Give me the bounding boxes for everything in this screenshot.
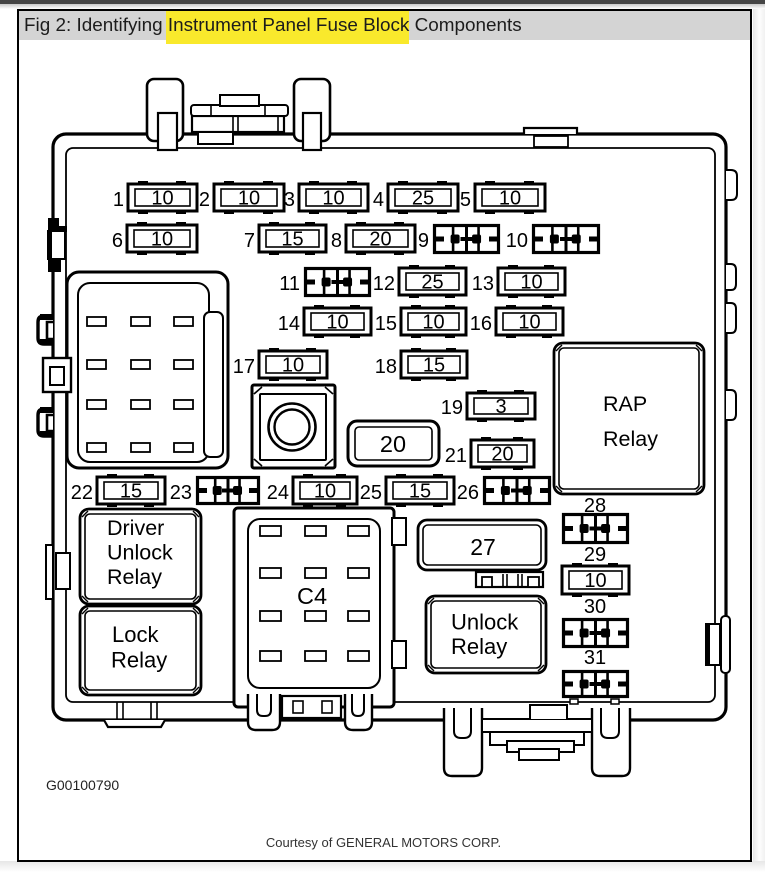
svg-text:19: 19 (441, 397, 463, 419)
svg-text:Relay: Relay (603, 427, 658, 451)
svg-text:31: 31 (584, 647, 606, 669)
svg-text:10: 10 (151, 188, 173, 210)
svg-text:Relay: Relay (111, 648, 167, 673)
svg-text:25: 25 (360, 482, 382, 504)
svg-text:15: 15 (423, 355, 445, 377)
svg-text:Lock: Lock (112, 622, 159, 647)
svg-text:17: 17 (233, 356, 255, 378)
svg-text:15: 15 (375, 313, 397, 335)
svg-text:24: 24 (267, 482, 289, 504)
svg-text:Relay: Relay (451, 634, 507, 659)
svg-text:10: 10 (520, 272, 542, 294)
svg-text:26: 26 (457, 482, 479, 504)
svg-text:11: 11 (279, 273, 300, 295)
svg-text:10: 10 (151, 229, 173, 251)
svg-text:20: 20 (380, 431, 406, 457)
svg-text:27: 27 (470, 534, 496, 560)
svg-text:8: 8 (331, 230, 342, 252)
svg-text:3: 3 (495, 396, 506, 418)
svg-text:15: 15 (281, 229, 303, 251)
svg-text:10: 10 (322, 188, 344, 210)
svg-text:Driver: Driver (107, 516, 164, 540)
svg-text:12: 12 (373, 273, 395, 295)
svg-text:10: 10 (326, 312, 348, 334)
svg-text:Relay: Relay (107, 565, 162, 589)
svg-text:10: 10 (506, 230, 528, 252)
svg-text:18: 18 (375, 356, 397, 378)
svg-text:10: 10 (518, 312, 540, 334)
svg-text:RAP: RAP (603, 392, 647, 416)
svg-text:2: 2 (199, 189, 210, 211)
svg-text:10: 10 (584, 570, 606, 592)
svg-text:20: 20 (491, 444, 513, 466)
svg-text:30: 30 (584, 596, 606, 618)
svg-text:3: 3 (284, 189, 295, 211)
svg-text:C4: C4 (297, 583, 327, 609)
svg-text:6: 6 (112, 230, 123, 252)
svg-text:1: 1 (113, 189, 124, 211)
svg-text:16: 16 (470, 313, 492, 335)
svg-text:15: 15 (409, 481, 431, 503)
svg-text:29: 29 (584, 544, 606, 566)
svg-text:5: 5 (460, 189, 471, 211)
svg-text:15: 15 (120, 481, 142, 503)
svg-text:10: 10 (314, 481, 336, 503)
svg-text:Unlock: Unlock (451, 610, 519, 635)
svg-text:13: 13 (472, 273, 494, 295)
svg-text:10: 10 (422, 312, 444, 334)
svg-text:25: 25 (412, 188, 434, 210)
svg-text:10: 10 (499, 188, 521, 210)
svg-text:25: 25 (421, 272, 443, 294)
svg-text:9: 9 (418, 230, 429, 252)
svg-text:7: 7 (244, 230, 255, 252)
svg-text:14: 14 (278, 313, 300, 335)
svg-text:21: 21 (445, 445, 467, 467)
svg-text:20: 20 (369, 229, 391, 251)
svg-text:10: 10 (238, 188, 260, 210)
svg-text:23: 23 (170, 482, 192, 504)
svg-text:Unlock: Unlock (107, 541, 173, 565)
svg-text:10: 10 (282, 355, 304, 377)
svg-text:22: 22 (71, 482, 93, 504)
svg-text:4: 4 (373, 189, 384, 211)
